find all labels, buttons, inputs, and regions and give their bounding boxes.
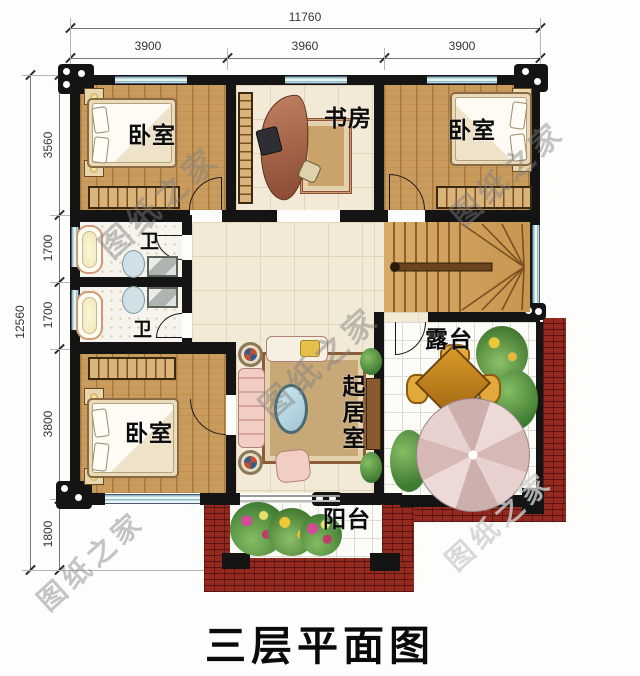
wall-bedroom3-living-2 [226,435,236,493]
wall-bath-bedroom3 [70,342,236,354]
terrace-door-floor [384,312,428,322]
wall-study-bedroom2 [374,85,384,210]
dim-top-seg-3: 3900 [449,39,476,53]
label-terrace: 露台 [425,320,473,354]
extension-line [384,48,385,70]
label-bedroom-bottom-left: 卧室 [125,414,173,448]
wall-bottom-2 [200,493,240,505]
window-stairs [532,225,540,305]
window-bedroom-top-left [115,76,187,84]
dim-left-seg-1: 3560 [41,132,55,159]
dim-top-seg-2: 3960 [292,39,319,53]
bathtub-lower [76,291,103,340]
dim-left-seg-5: 1800 [41,521,55,548]
dim-left-total: 12560 [13,305,27,338]
potted-plant [360,348,382,375]
extension-line [70,18,71,70]
potted-plant [360,452,382,483]
wall-corridor-2 [222,210,277,222]
side-table [238,450,263,475]
wall-corridor-3 [340,210,388,222]
lounge-seat [274,448,311,483]
label-living-room: 起居室 [335,374,369,452]
balcony-post-left [222,553,250,569]
hall-passage-floor [374,222,384,322]
floor-plan-page: 11760 3900 3960 3900 12560 3560 1700 170… [0,0,640,676]
dim-line-left-total [30,75,31,570]
label-bedroom-top-right: 卧室 [448,111,496,145]
dim-line-top-segments [70,58,540,59]
label-balcony: 阳台 [323,500,371,534]
shower-lower [147,287,178,308]
dim-line-top-total [70,28,540,29]
watermark: 图纸之家 [28,501,153,619]
extension-line [540,18,541,70]
dim-left-seg-2: 1700 [41,235,55,262]
extension-line [50,282,70,283]
dim-left-seg-3: 1700 [41,302,55,329]
window-bedroom-top-right [427,76,497,84]
dim-top-seg-1: 3900 [135,39,162,53]
bookshelf [238,92,253,204]
wardrobe [88,357,176,380]
page-title: 三层平面图 [205,612,435,672]
wall-bath-east-1 [182,215,192,235]
extension-line [227,48,228,70]
column-post-bottom-left [56,481,92,509]
side-table [238,342,263,367]
dim-top-total: 11760 [289,10,321,24]
staircase [384,222,530,312]
wall-bedroom3-living-1 [226,354,236,395]
window-study [285,76,347,84]
balcony-post-right [370,553,400,571]
dim-left-seg-4: 3800 [41,411,55,438]
label-study: 书房 [324,99,372,133]
staircase-treads [384,222,530,312]
wall-bedroom1-study [226,85,236,210]
shower-upper [147,256,178,277]
label-bath-lower: 卫 [133,315,153,342]
extension-line [50,215,70,216]
label-bedroom-top-left: 卧室 [128,116,176,150]
sink-lower [122,286,145,314]
extension-line [50,349,70,350]
window-bedroom-bottom-left [105,494,200,504]
